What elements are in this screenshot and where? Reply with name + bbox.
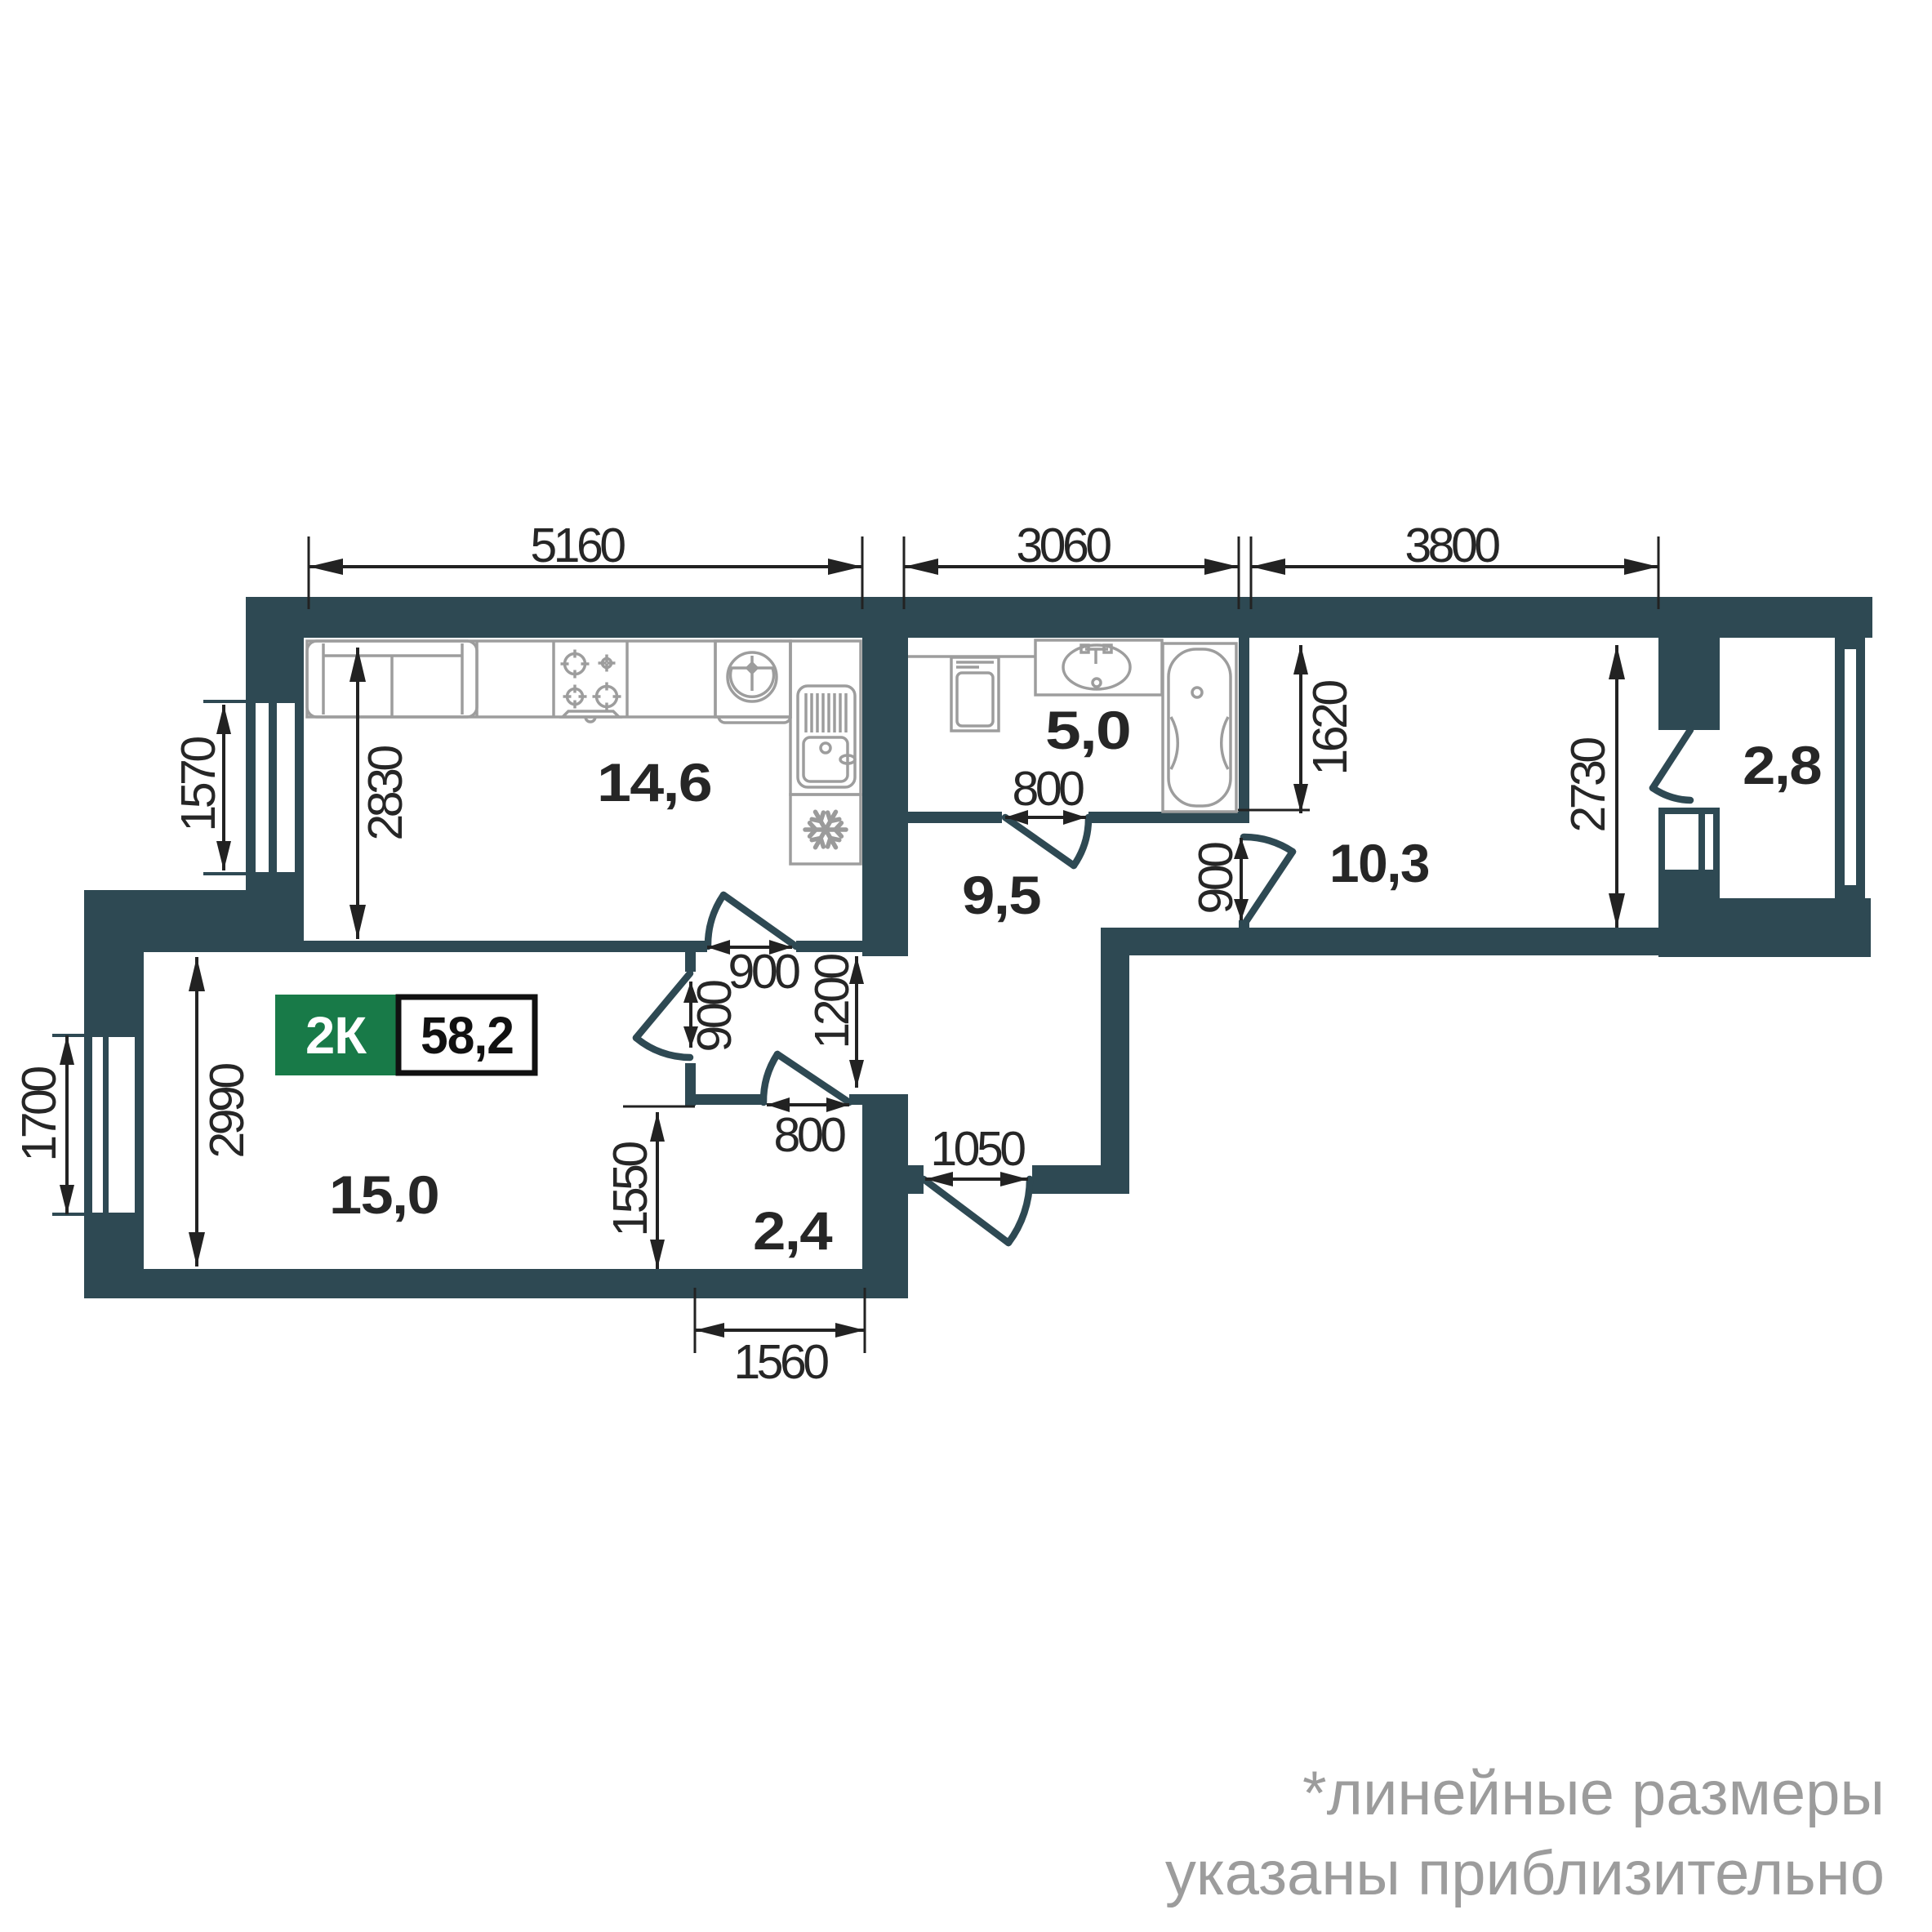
svg-text:1200: 1200 [805, 955, 859, 1049]
svg-text:3800: 3800 [1404, 519, 1499, 572]
svg-text:*линейные размеры: *линейные размеры [1302, 1759, 1885, 1828]
svg-text:1570: 1570 [171, 737, 225, 832]
svg-text:800: 800 [774, 1108, 846, 1162]
svg-text:2830: 2830 [358, 746, 412, 841]
svg-text:800: 800 [1013, 762, 1084, 816]
svg-text:2,4: 2,4 [753, 1200, 833, 1261]
svg-text:5,0: 5,0 [1045, 700, 1130, 760]
svg-text:2730: 2730 [1561, 738, 1615, 833]
svg-text:1560: 1560 [733, 1335, 828, 1389]
svg-text:3060: 3060 [1016, 519, 1111, 572]
svg-text:15,0: 15,0 [329, 1164, 438, 1225]
svg-text:1620: 1620 [1303, 681, 1357, 776]
svg-text:900: 900 [1189, 843, 1243, 915]
svg-text:1550: 1550 [603, 1142, 657, 1237]
svg-text:14,6: 14,6 [597, 752, 711, 812]
svg-text:10,3: 10,3 [1329, 833, 1429, 893]
svg-text:1050: 1050 [930, 1122, 1025, 1176]
svg-text:58,2: 58,2 [421, 1006, 514, 1065]
svg-text:2,8: 2,8 [1743, 735, 1821, 795]
svg-text:указаны приблизительно: указаны приблизительно [1165, 1839, 1885, 1908]
svg-text:2К: 2К [305, 1006, 367, 1065]
svg-text:2990: 2990 [200, 1064, 254, 1159]
svg-text:5160: 5160 [530, 519, 625, 572]
svg-text:900: 900 [688, 981, 741, 1053]
svg-text:9,5: 9,5 [962, 865, 1040, 925]
svg-text:1700: 1700 [12, 1067, 66, 1162]
